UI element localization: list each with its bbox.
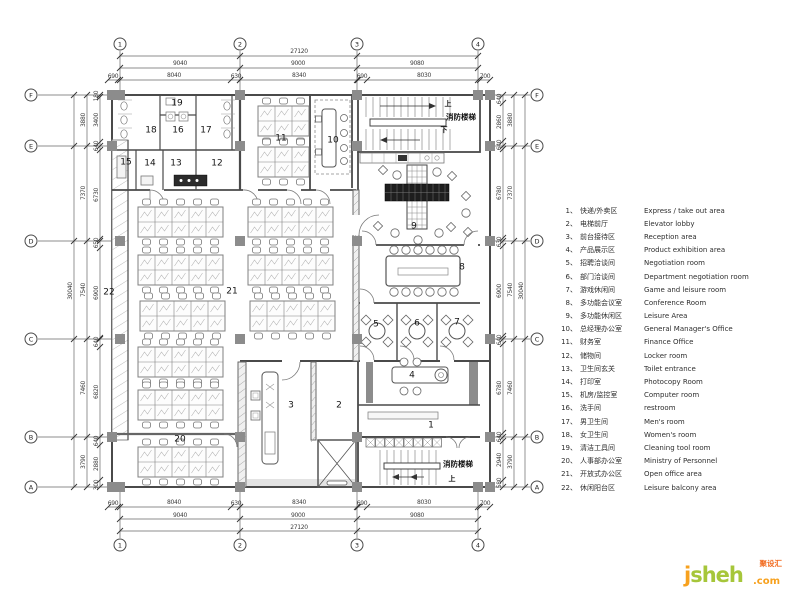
legend-row: 15、 机房/监控室 Computer room [560,389,788,402]
legend-name-en: Open office area [644,470,788,478]
legend-number: 20、 [560,456,577,466]
legend-number: 8、 [560,298,577,308]
room-number-label: 21 [226,288,237,297]
grid-bubble: 1 [114,38,127,51]
dimension-label: 9080 [410,61,424,67]
legend-number: 21、 [560,469,577,479]
dimension-label: 7370 [508,186,514,200]
dimension-label: 2940 [497,453,503,467]
grid-bubble: E [531,140,544,153]
legend-number: 4、 [560,245,577,255]
room-number-label: 22 [103,289,114,298]
legend-number: 13、 [560,364,577,374]
room-number-label: 2 [336,402,342,411]
dimension-label: 700 [480,74,491,80]
stair-up-label: 上 [449,474,456,484]
legend-name-zh: 男卫生间 [580,417,644,427]
legend-name-zh: 卫生间玄关 [580,364,644,374]
grid-bubble: A [531,481,544,494]
dimension-label: 300 [94,480,100,491]
grid-bubble: 4 [472,38,485,51]
room-number-label: 12 [211,160,222,169]
dimension-label: 9040 [173,61,187,67]
legend-name-zh: 快递/外卖区 [580,206,644,216]
legend-name-en: Leisure balcony area [644,484,788,492]
legend-name-zh: 开放式办公区 [580,469,644,479]
grid-bubble: B [531,431,544,444]
legend-number: 5、 [560,258,577,268]
legend-name-zh: 人事部办公室 [580,456,644,466]
legend-name-zh: 打印室 [580,377,644,387]
room-number-label: 1 [428,422,434,431]
dimension-label: 6900 [497,284,503,298]
legend-row: 13、 卫生间玄关 Toilet entrance [560,362,788,375]
legend-row: 11、 财务室 Finance Office [560,336,788,349]
dimension-label: 640 [94,141,100,152]
legend-row: 1、 快递/外卖区 Express / take out area [560,204,788,217]
grid-bubble: B [25,431,38,444]
legend-number: 6、 [560,272,577,282]
grid-bubble: 2 [234,38,247,51]
legend-name-en: Product exhibition area [644,246,788,254]
logo-badge: 聚设汇 [760,558,783,569]
grid-bubble: 3 [351,38,364,51]
dimension-label: 700 [480,501,491,507]
legend-name-en: Photocopy Room [644,378,788,386]
legend-name-en: Cleaning tool room [644,444,788,452]
legend-row: 14、 打印室 Photocopy Room [560,375,788,388]
legend-name-en: Elevator lobby [644,220,788,228]
dimension-label: 6900 [94,286,100,300]
dimension-label: 2860 [497,115,503,129]
dimension-label: 9040 [173,513,187,519]
grid-bubble: F [25,89,38,102]
dimension-label: 8340 [292,500,306,506]
grid-bubble: F [531,89,544,102]
legend-name-zh: 多功能休闲区 [580,311,644,321]
legend-row: 20、 人事部办公室 Ministry of Personnel [560,455,788,468]
legend-number: 9、 [560,311,577,321]
room-number-label: 10 [327,137,338,146]
legend-name-zh: 女卫生间 [580,430,644,440]
room-legend: 1、 快递/外卖区 Express / take out area 2、 电梯前… [560,204,788,494]
dimension-label: 6780 [497,381,503,395]
room-number-label: 11 [275,135,286,144]
legend-name-zh: 清洁工具间 [580,443,644,453]
legend-number: 17、 [560,417,577,427]
legend-row: 17、 男卫生间 Men's room [560,415,788,428]
legend-number: 14、 [560,377,577,387]
dimension-label: 30040 [519,282,525,300]
legend-number: 19、 [560,443,577,453]
stair-down-label: 下 [441,125,448,135]
logo-sheh: sheh [690,563,743,587]
legend-number: 1、 [560,206,577,216]
dimension-label: 630 [497,237,503,248]
floor-plan-page: 12341234FEDCBAFEDCBA 2712090409000908069… [0,0,790,592]
legend-number: 18、 [560,430,577,440]
grid-bubble: C [531,333,544,346]
dimension-label: 8040 [167,500,181,506]
legend-number: 10、 [560,324,577,334]
legend-name-en: restroom [644,404,788,412]
room-number-label: 6 [414,320,420,329]
legend-name-zh: 招聘洽谈间 [580,258,644,268]
room-number-label: 5 [373,321,379,330]
dimension-label: 6730 [94,188,100,202]
dimension-label: 640 [497,335,503,346]
legend-name-en: Reception area [644,233,788,241]
grid-bubble: 3 [351,539,364,552]
grid-bubble: 1 [114,539,127,552]
legend-name-zh: 电梯前厅 [580,219,644,229]
legend-name-en: Conference Room [644,299,788,307]
dimension-label: 630 [231,501,242,507]
legend-row: 7、 游戏休闲间 Game and leisure room [560,283,788,296]
legend-name-en: Finance Office [644,338,788,346]
grid-bubble: 2 [234,539,247,552]
legend-name-en: Computer room [644,391,788,399]
legend-name-en: Locker room [644,352,788,360]
dimension-label: 8040 [167,73,181,79]
legend-name-zh: 机房/监控室 [580,390,644,400]
legend-number: 16、 [560,403,577,413]
dimension-label: 3880 [81,113,87,127]
room-number-label: 17 [200,127,211,136]
legend-name-en: Men's room [644,418,788,426]
legend-name-en: Express / take out area [644,207,788,215]
legend-number: 3、 [560,232,577,242]
legend-name-en: Ministry of Personnel [644,457,788,465]
dimension-label: 180 [94,91,100,102]
legend-number: 7、 [560,285,577,295]
dimension-label: 6780 [497,186,503,200]
grid-bubble: D [531,235,544,248]
legend-name-en: General Manager's Office [644,325,788,333]
legend-number: 11、 [560,337,577,347]
stair-up-label: 上 [445,99,452,109]
legend-name-zh: 财务室 [580,337,644,347]
legend-row: 2、 电梯前厅 Elevator lobby [560,217,788,230]
dimension-label: 3790 [508,455,514,469]
legend-row: 18、 女卫生间 Women's room [560,428,788,441]
room-number-label: 15 [120,159,131,168]
dimension-label: 27120 [290,525,308,531]
legend-name-en: Game and leisure room [644,286,788,294]
dimension-label: 3400 [94,113,100,127]
room-number-label: 19 [171,100,182,109]
dimension-label: 690 [108,74,119,80]
legend-row: 9、 多功能休闲区 Leisure Area [560,310,788,323]
room-number-label: 20 [174,436,185,445]
legend-name-en: Toilet entrance [644,365,788,373]
dimension-label: 7540 [81,283,87,297]
legend-row: 16、 洗手间 restroom [560,402,788,415]
dimension-label: 640 [497,94,503,105]
dimension-label: 7460 [508,381,514,395]
legend-name-zh: 洗手间 [580,403,644,413]
legend-row: 10、 总经理办公室 General Manager's Office [560,323,788,336]
fire-stair-label: 消防楼梯 [446,112,476,123]
dimension-label: 7370 [81,186,87,200]
legend-name-en: Women's room [644,431,788,439]
legend-row: 21、 开放式办公区 Open office area [560,468,788,481]
legend-name-en: Negotiation room [644,259,788,267]
grid-bubble: D [25,235,38,248]
dimension-label: 2880 [94,457,100,471]
legend-name-zh: 休闲阳台区 [580,483,644,493]
room-number-label: 16 [172,127,183,136]
legend-name-zh: 部门洽谈间 [580,272,644,282]
dimension-label: 640 [94,337,100,348]
legend-name-zh: 游戏休闲间 [580,285,644,295]
legend-name-zh: 储物间 [580,351,644,361]
dimension-label: 640 [94,436,100,447]
legend-name-zh: 产品展示区 [580,245,644,255]
dimension-label: 7460 [81,381,87,395]
dimension-label: 640 [497,140,503,151]
dimension-label: 690 [357,501,368,507]
legend-name-en: Department negotiation room [644,273,788,281]
legend-name-zh: 总经理办公室 [580,324,644,334]
room-number-label: 18 [145,127,156,136]
grid-bubble: E [25,140,38,153]
room-number-label: 9 [411,223,417,232]
dimension-label: 3790 [81,455,87,469]
dimension-label: 3880 [508,113,514,127]
fire-stair-label: 消防楼梯 [443,459,473,470]
dimension-label: 640 [497,432,503,443]
dimension-label: 690 [108,501,119,507]
legend-row: 19、 清洁工具间 Cleaning tool room [560,441,788,454]
logo-com: .com [753,577,780,587]
legend-name-en: Leisure Area [644,312,788,320]
legend-row: 4、 产品展示区 Product exhibition area [560,244,788,257]
dimension-label: 9000 [291,513,305,519]
legend-number: 12、 [560,351,577,361]
grid-bubble: 4 [472,539,485,552]
dimension-label: 580 [497,478,503,489]
legend-row: 12、 储物间 Locker room [560,349,788,362]
legend-number: 22、 [560,483,577,493]
dimension-label: 8030 [417,500,431,506]
legend-name-zh: 多功能会议室 [580,298,644,308]
legend-row: 6、 部门洽谈间 Department negotiation room [560,270,788,283]
dimension-label: 7540 [508,283,514,297]
legend-number: 2、 [560,219,577,229]
dimension-label: 650 [94,238,100,249]
room-number-label: 13 [170,160,181,169]
dimension-label: 630 [231,74,242,80]
grid-bubble: A [25,481,38,494]
room-number-label: 3 [288,402,294,411]
dimension-label: 30040 [68,282,74,300]
legend-row: 3、 前台接待区 Reception area [560,230,788,243]
room-number-label: 8 [459,264,465,273]
dimension-label: 6820 [94,385,100,399]
legend-row: 8、 多功能会议室 Conference Room [560,296,788,309]
dimension-label: 8030 [417,73,431,79]
grid-bubble: C [25,333,38,346]
logo-text: jsheh [684,565,743,586]
dimension-label: 8340 [292,73,306,79]
dimension-label: 9000 [291,61,305,67]
legend-row: 5、 招聘洽谈间 Negotiation room [560,257,788,270]
legend-number: 15、 [560,390,577,400]
room-number-label: 7 [454,319,460,328]
jsheh-watermark-logo: jsheh 聚设汇 .com [684,558,784,588]
room-number-label: 4 [409,372,415,381]
legend-row: 22、 休闲阳台区 Leisure balcony area [560,481,788,494]
room-number-label: 14 [144,160,155,169]
dimension-label: 9080 [410,513,424,519]
legend-name-zh: 前台接待区 [580,232,644,242]
dimension-label: 690 [357,74,368,80]
dimension-label: 27120 [290,49,308,55]
